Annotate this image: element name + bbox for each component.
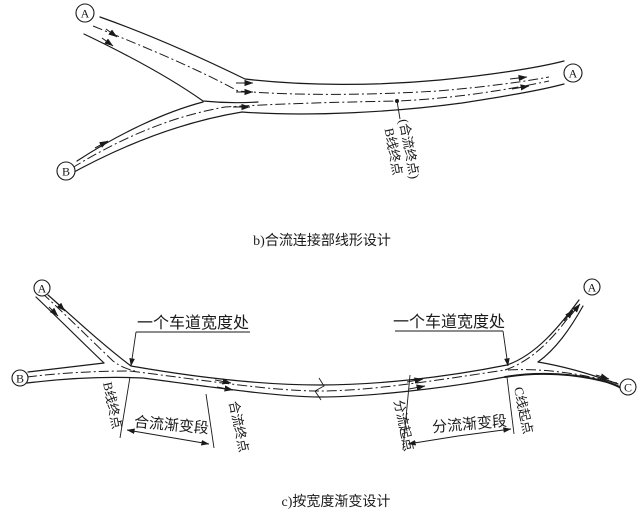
traffic-arrow: [95, 141, 108, 148]
traffic-arrow: [106, 29, 117, 37]
road-b-upper-edge: [77, 102, 203, 161]
b-line-end-label: B线终点: [100, 381, 125, 431]
lane-width-label: 一个车道宽度处: [137, 314, 249, 332]
c-line-start-label-group: C线起点: [511, 386, 536, 436]
node-a-right: A: [564, 64, 582, 82]
extension-line-b-end: [120, 377, 130, 438]
diverge-start-label-group: 分流起点: [391, 399, 416, 453]
node-c-right: C: [620, 379, 636, 395]
merge-alignment-diagram: A B A (合流终点) B线终点 b)合流连接部线形设计: [57, 4, 582, 249]
diverge-taper-label: 分流渐变段: [432, 413, 508, 436]
road-b-centerline: [27, 371, 130, 377]
merge-end-label: 合流终点: [226, 400, 251, 454]
caption-diagram-c: c)按宽度渐变设计: [282, 493, 391, 510]
road-a-exit-inner-edge: [538, 306, 583, 362]
traffic-arrow: [102, 38, 113, 46]
road-a-approach-centerline: [42, 293, 135, 371]
b-line-end-label-group: B线终点: [100, 381, 125, 431]
top-edge-a-to-a: [48, 295, 579, 385]
traffic-arrow: [510, 77, 527, 79]
merge-taper-dimension: 合流渐变段 B线终点 合流终点: [100, 377, 251, 454]
traffic-arrow: [409, 386, 425, 389]
lane-width-callout-left: 一个车道宽度处: [131, 314, 250, 366]
extension-line-c-start: [507, 377, 514, 434]
node-label: A: [81, 7, 90, 21]
node-a-right: A: [584, 279, 600, 295]
road-a-outer-edge: [100, 17, 564, 84]
node-label: B: [16, 372, 24, 386]
road-design-diagram-canvas: A B A (合流终点) B线终点 b)合流连接部线形设计: [0, 0, 640, 520]
lane-width-label: 一个车道宽度处: [393, 313, 505, 331]
node-a-left: A: [76, 4, 94, 22]
callout-leader: [503, 331, 508, 366]
node-a-left: A: [34, 280, 50, 296]
callout-leader: [131, 332, 136, 366]
c-line-start-label: C线起点: [511, 386, 536, 436]
caption-diagram-b: b)合流连接部线形设计: [253, 232, 391, 249]
node-b-left: B: [12, 370, 28, 386]
lane-width-callout-right: 一个车道宽度处: [393, 313, 508, 366]
mainline-centerline: [130, 370, 505, 391]
road-b-upper-edge: [28, 363, 104, 372]
diverge-taper-dimension: 分流渐变段 分流起点 C线起点: [391, 375, 536, 453]
traffic-arrow: [564, 310, 573, 321]
merge-taper-label: 合流渐变段: [133, 414, 209, 437]
node-label: A: [569, 67, 578, 81]
merge-end-label-group: 合流终点: [226, 400, 251, 454]
node-label: C: [624, 381, 632, 395]
dimension-arrow-right: [168, 437, 209, 444]
road-b-centerline: [72, 81, 549, 168]
node-label: A: [38, 282, 47, 296]
diverge-start-label: 分流起点: [391, 399, 416, 453]
merge-end-annotation: (合流终点) B线终点: [380, 118, 422, 183]
road-b-lower-edge: [65, 84, 564, 177]
node-b-left: B: [57, 162, 75, 180]
bottom-edge-mainline: [27, 377, 505, 397]
node-label: A: [588, 281, 597, 295]
width-taper-diagram: A B A C 一个车道宽度处 一个车道宽度处: [12, 279, 636, 510]
node-label: B: [62, 165, 70, 179]
road-a-approach-inner-edge: [36, 297, 104, 363]
